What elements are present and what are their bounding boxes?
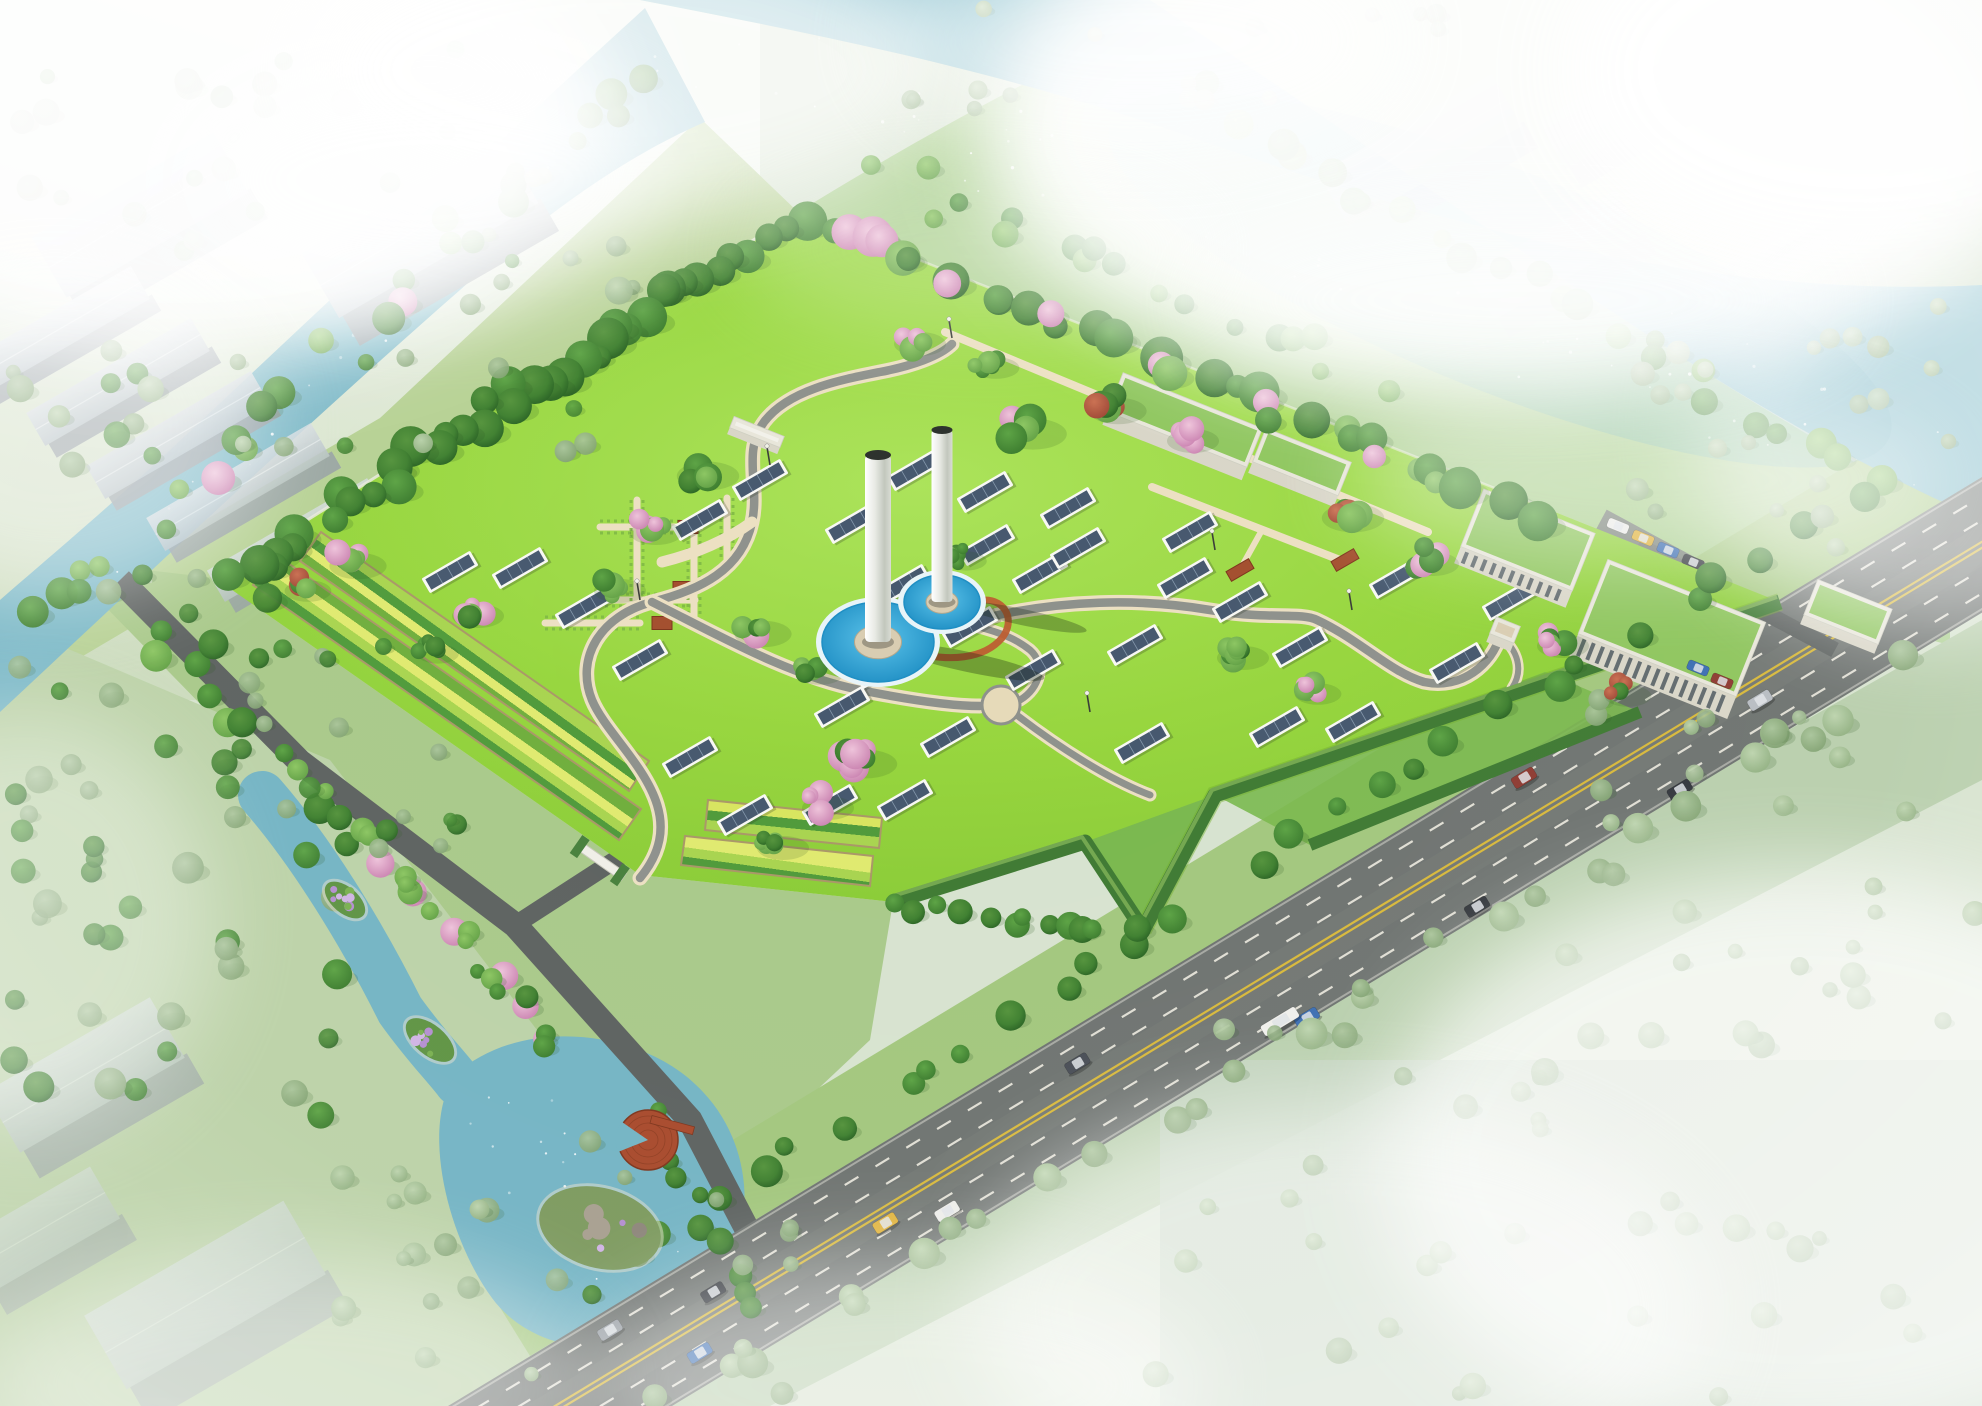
- aerial-rendering: [0, 0, 1982, 1406]
- scene-canvas: [0, 0, 1982, 1406]
- haze-veil: [0, 0, 1982, 1406]
